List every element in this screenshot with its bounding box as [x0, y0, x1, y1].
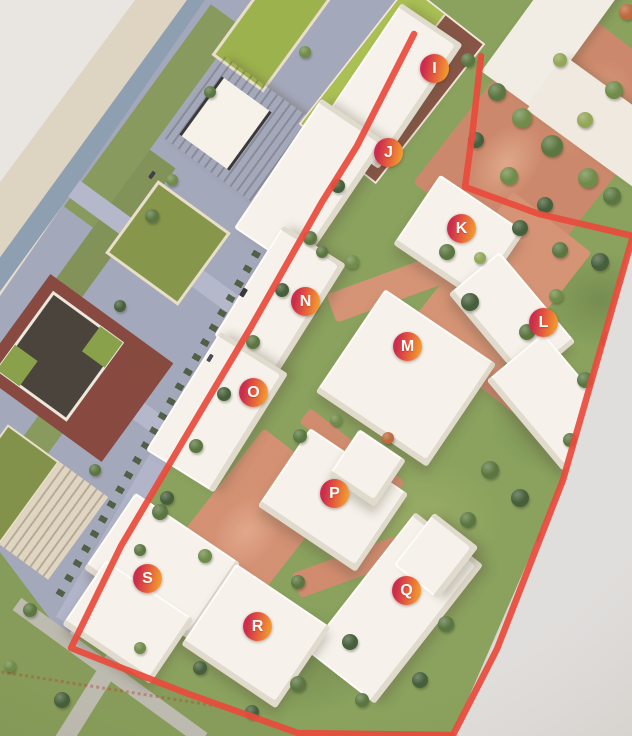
marker-building-j[interactable]: J: [374, 138, 403, 167]
marker-building-m[interactable]: M: [393, 332, 422, 361]
marker-building-p[interactable]: P: [320, 479, 349, 508]
marker-building-q[interactable]: Q: [392, 576, 421, 605]
marker-building-l[interactable]: L: [529, 308, 558, 337]
marker-building-i[interactable]: I: [420, 54, 449, 83]
development-site-model-photo: I J K L M N O P Q R S: [0, 0, 632, 736]
marker-building-k[interactable]: K: [447, 214, 476, 243]
marker-building-r[interactable]: R: [243, 612, 272, 641]
marker-building-o[interactable]: O: [239, 378, 268, 407]
site-boundary-line: [0, 0, 632, 736]
marker-building-s[interactable]: S: [133, 564, 162, 593]
marker-building-n[interactable]: N: [291, 287, 320, 316]
